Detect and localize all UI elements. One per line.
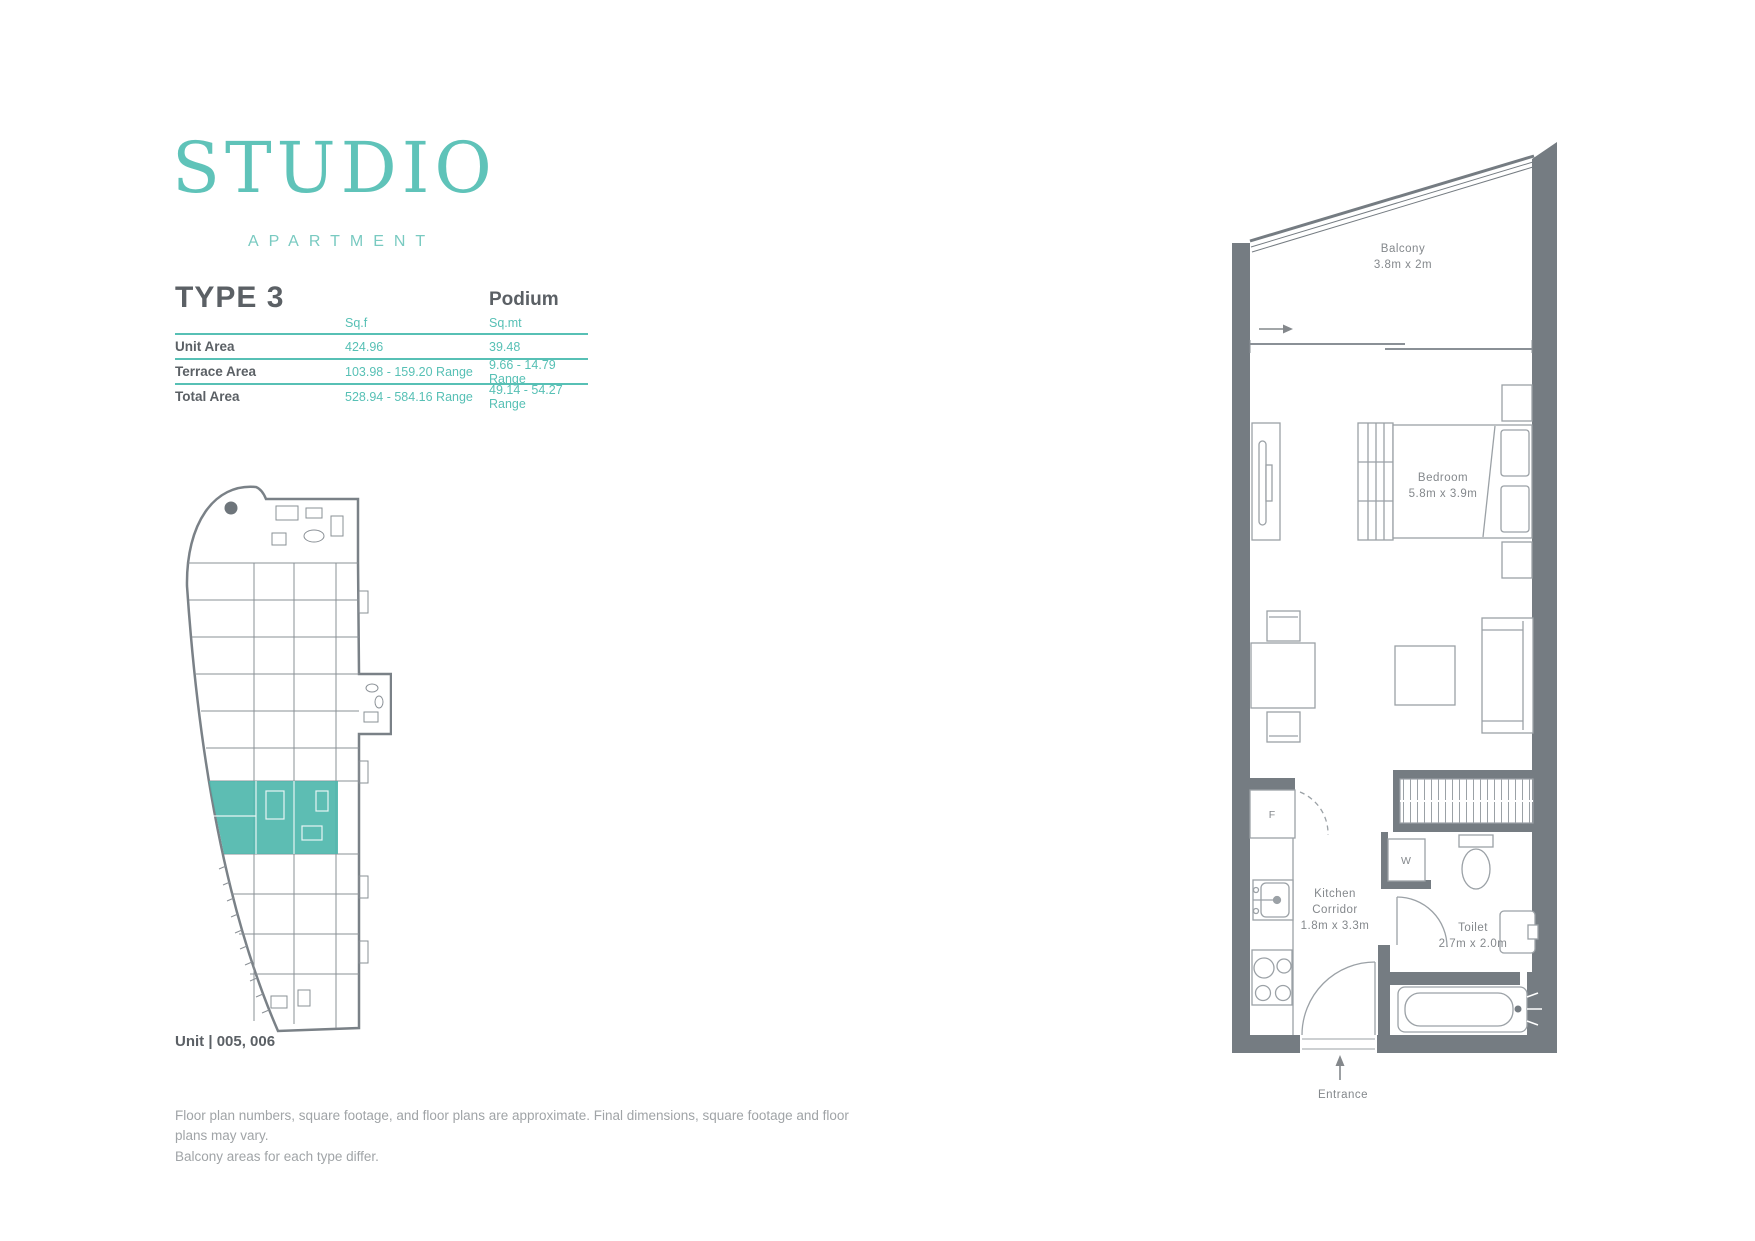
row-value-sqmt: 9.66 - 14.79 Range	[489, 358, 588, 386]
entrance-door-swing	[1302, 962, 1375, 1035]
disclaimer-text: Floor plan numbers, square footage, and …	[175, 1106, 875, 1167]
balcony-parapet	[1250, 156, 1534, 252]
balcony-access-arrow	[1259, 325, 1293, 334]
column-header-sqf: Sq.f	[345, 316, 489, 330]
row-label: Unit Area	[175, 339, 345, 354]
disclaimer-line-1: Floor plan numbers, square footage, and …	[175, 1106, 875, 1147]
dining-table	[1251, 643, 1315, 708]
row-value-sqmt: 39.48	[489, 340, 588, 354]
wc-tank	[1459, 835, 1493, 847]
dining-chair	[1267, 712, 1300, 742]
fridge-label: F	[1269, 809, 1275, 821]
brochure-page: STUDIO APARTMENT TYPE 3 Podium Sq.f Sq.m…	[0, 0, 1755, 1241]
stove	[1252, 950, 1292, 1005]
entrance-arrow	[1336, 1055, 1345, 1080]
toilet-dims: 2.7m x 2.0m	[1439, 938, 1508, 950]
row-label: Terrace Area	[175, 364, 345, 379]
living-furniture	[1251, 611, 1533, 742]
sofa	[1482, 618, 1533, 733]
entrance-label: Entrance	[1318, 1089, 1368, 1100]
bedroom-dims: 5.8m x 3.9m	[1409, 488, 1478, 500]
tv-bracket	[1266, 465, 1272, 501]
key-plan-internal-walls	[188, 506, 383, 1028]
row-value-sqf: 424.96	[345, 340, 489, 354]
main-floor-plan: Balcony 3.8m x 2m Bedroom 5.8m x 3.9m Ki…	[1085, 125, 1565, 1100]
unit-type-heading: TYPE 3	[175, 281, 284, 315]
row-value-sqmt: 49.14 - 54.27 Range	[489, 383, 588, 411]
kitchen-dims: 1.8m x 3.3m	[1301, 920, 1370, 932]
key-plan	[176, 436, 392, 1036]
pillow	[1501, 430, 1529, 476]
table-header-row: Sq.f Sq.mt	[175, 313, 588, 333]
column-header-sqmt: Sq.mt	[489, 316, 588, 330]
table-row-unit-area: Unit Area 424.96 39.48	[175, 333, 588, 358]
area-table: Sq.f Sq.mt Unit Area 424.96 39.48 Terrac…	[175, 313, 588, 408]
bedroom-label: Bedroom	[1418, 472, 1468, 484]
nightstand-top	[1502, 385, 1532, 421]
unit-number-label: Unit | 005, 006	[175, 1033, 275, 1050]
podium-heading: Podium	[489, 289, 559, 311]
fridge-door-swing	[1300, 792, 1328, 835]
pillow	[1501, 486, 1529, 532]
key-plan-core-dot	[225, 502, 238, 515]
tv-screen	[1259, 441, 1266, 525]
brand-subtitle: APARTMENT	[248, 233, 435, 251]
basin-tap	[1528, 925, 1538, 939]
coffee-table	[1395, 646, 1455, 705]
key-plan-outline	[187, 487, 391, 1031]
dining-chair	[1267, 611, 1300, 641]
brand-title: STUDIO	[172, 133, 497, 203]
kitchen-label-line1: Kitchen	[1314, 888, 1356, 900]
wc-bowl	[1462, 849, 1490, 889]
balcony-label: Balcony	[1381, 243, 1425, 255]
bedroom-furniture	[1252, 385, 1532, 578]
key-plan-highlighted-units	[209, 781, 338, 854]
row-label: Total Area	[175, 389, 345, 404]
kitchen-label-line2: Corridor	[1312, 904, 1358, 916]
bathtub-drain	[1515, 1006, 1522, 1013]
table-row-total-area: Total Area 528.94 - 584.16 Range 49.14 -…	[175, 383, 588, 408]
washer-label: W	[1401, 855, 1411, 867]
row-value-sqf: 528.94 - 584.16 Range	[345, 390, 489, 404]
balcony-dims: 3.8m x 2m	[1374, 259, 1432, 271]
table-row-terrace-area: Terrace Area 103.98 - 159.20 Range 9.66 …	[175, 358, 588, 383]
nightstand-bottom	[1502, 542, 1532, 578]
toilet-label: Toilet	[1458, 922, 1488, 934]
balcony-sliding-door	[1250, 340, 1532, 353]
disclaimer-line-2: Balcony areas for each type differ.	[175, 1147, 875, 1167]
row-value-sqf: 103.98 - 159.20 Range	[345, 365, 489, 379]
entrance-door	[1302, 962, 1375, 1049]
